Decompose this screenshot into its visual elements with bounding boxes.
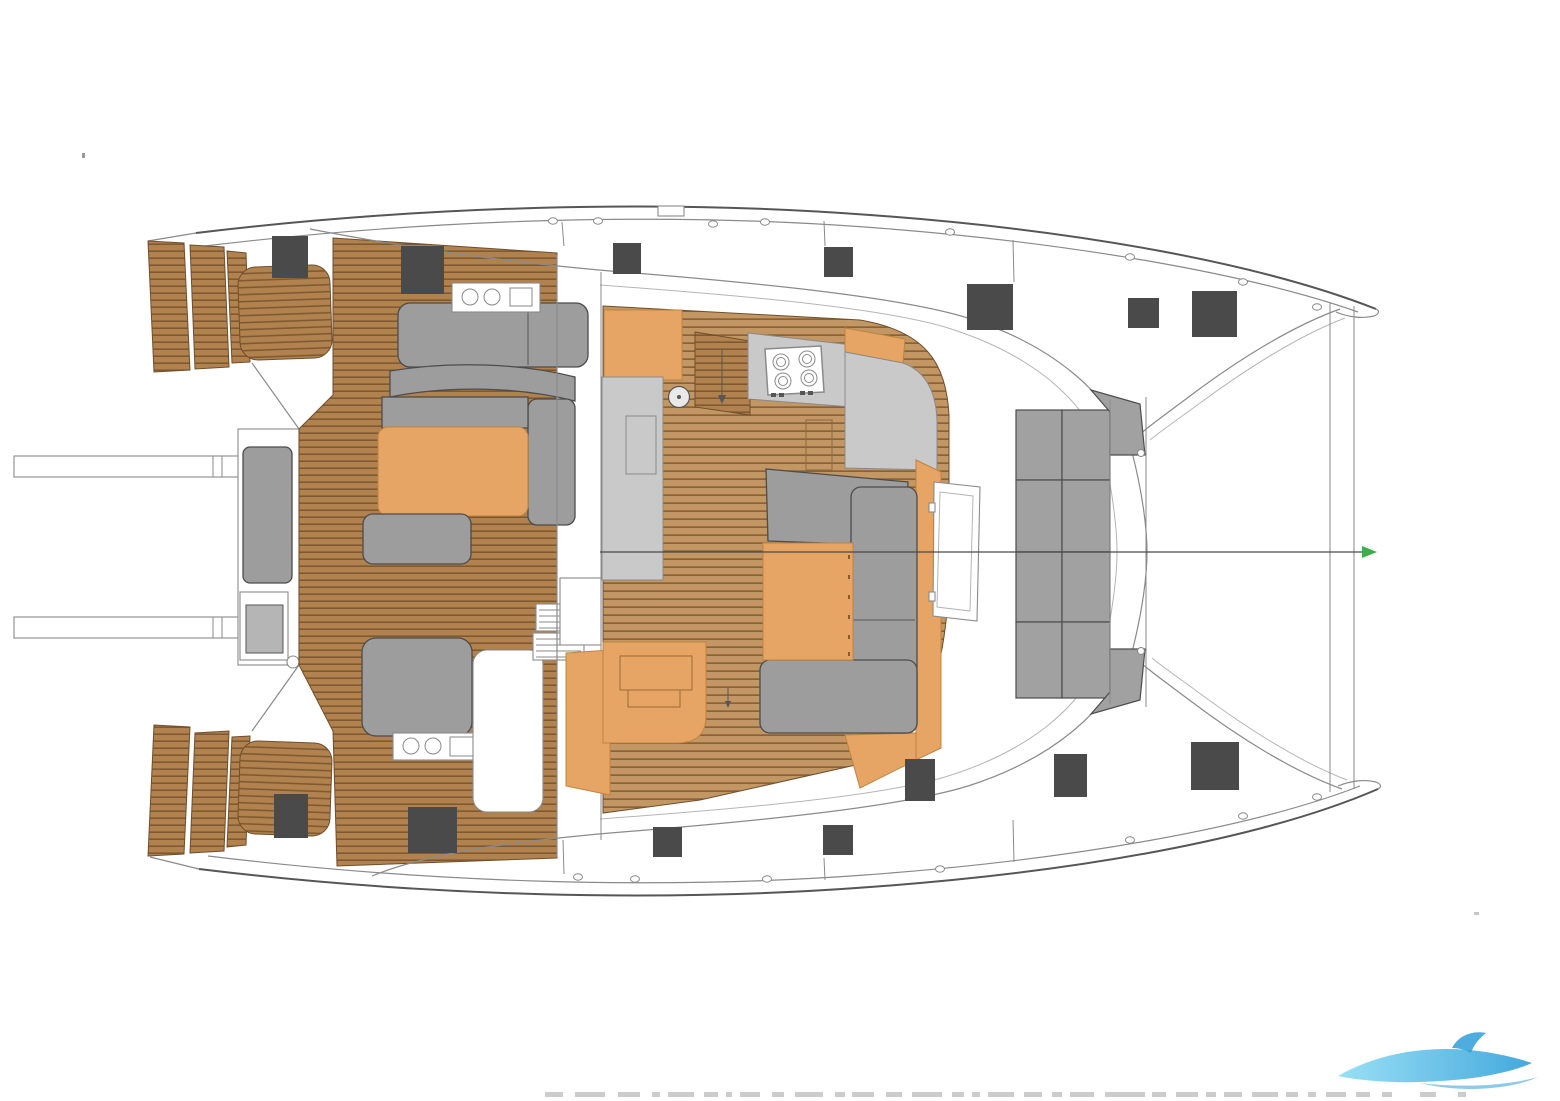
- footer-mark: [952, 1092, 964, 1097]
- footer-mark: [912, 1092, 942, 1097]
- transom-fitting: [287, 656, 299, 668]
- watermark-logo: [1338, 1032, 1538, 1089]
- scan-speck-2: [1474, 912, 1479, 915]
- footer-mark: [668, 1092, 694, 1097]
- saloon-table: [763, 543, 853, 660]
- deck-hatch: [824, 247, 853, 277]
- davit-bar-lower: [14, 617, 242, 638]
- chart-table: [603, 642, 706, 743]
- aft-cockpit: [299, 238, 588, 866]
- footer-mark: [1458, 1092, 1466, 1097]
- cleat: [763, 876, 772, 882]
- deck-hatch: [1192, 291, 1237, 337]
- cleat: [574, 874, 583, 880]
- anchor-locker: [658, 206, 684, 216]
- footer-mark: [1286, 1092, 1298, 1097]
- cockpit-bench-fwd: [363, 514, 471, 564]
- stbd-transom-edge: [150, 857, 199, 869]
- cleat: [631, 876, 640, 882]
- deck-hatch: [272, 236, 308, 278]
- deck-hatch: [1191, 742, 1239, 790]
- sliding-door-opening: [560, 578, 601, 645]
- footer-mark: [1356, 1092, 1370, 1097]
- footer-mark: [1382, 1092, 1392, 1097]
- port-transom-walkway-line: [252, 363, 299, 429]
- footer-mark: [1152, 1092, 1166, 1097]
- cleat: [1126, 254, 1135, 260]
- cleat: [594, 218, 603, 224]
- footer-mark: [972, 1092, 980, 1097]
- stbd-bow-inner-edge-2: [1152, 658, 1347, 780]
- cockpit-sofa-seat: [382, 397, 528, 428]
- footer-mark: [1070, 1092, 1094, 1097]
- stove: [765, 346, 824, 397]
- galley-sink-drain: [677, 395, 681, 399]
- deck-hatch: [1054, 754, 1087, 797]
- transom-locker-lid: [246, 605, 283, 653]
- deck-hatch: [274, 794, 308, 838]
- footer-mark: [652, 1092, 660, 1097]
- davit-bar-upper: [14, 456, 242, 477]
- footer-mark: [1105, 1092, 1145, 1097]
- cockpit-sofa-seat-right: [528, 399, 575, 525]
- footer-mark: [795, 1092, 823, 1097]
- forward-cushion-cell: [1016, 410, 1062, 480]
- cockpit-island: [473, 650, 543, 812]
- forward-cushion-cell: [1062, 480, 1110, 552]
- stbd-bow-inner-edge: [1142, 664, 1342, 789]
- forward-cushion-grid: [1016, 410, 1110, 698]
- deck-hatch: [905, 759, 935, 801]
- footer-mark: [886, 1092, 902, 1097]
- window-latch-2: [929, 592, 935, 601]
- forward-frame-pin-2: [1138, 648, 1145, 655]
- port-bow-inner-edge: [1140, 309, 1340, 434]
- cleat: [549, 218, 558, 224]
- deck-hatch: [823, 825, 853, 855]
- deck-hatch: [408, 807, 457, 853]
- forward-cushion-cell: [1016, 552, 1062, 622]
- cleat: [1239, 813, 1248, 819]
- footer-mark: [1420, 1092, 1436, 1097]
- cleat: [1239, 279, 1248, 285]
- cleat: [1126, 837, 1135, 843]
- footer-mark: [835, 1092, 845, 1097]
- footer-mark: [1052, 1092, 1062, 1097]
- drawing-canvas: [0, 0, 1560, 1101]
- cleat: [709, 221, 718, 227]
- stbd-bow-tip: [1338, 781, 1380, 789]
- footer-mark: [988, 1092, 1014, 1097]
- footer-mark: [1326, 1092, 1346, 1097]
- port-transom-seat: [237, 264, 332, 360]
- cleat: [1313, 794, 1322, 800]
- footer-mark: [1176, 1092, 1198, 1097]
- footer-mark: [772, 1092, 784, 1097]
- cleat: [946, 229, 955, 235]
- footer-mark: [1224, 1092, 1242, 1097]
- footer-mark: [1308, 1092, 1316, 1097]
- cleat: [936, 866, 945, 872]
- scan-speck-1: [82, 153, 85, 158]
- forward-cushion-cell: [1062, 622, 1110, 698]
- centerline-green-marker: [1362, 546, 1377, 558]
- deck-hatch: [653, 827, 682, 857]
- forward-cushion-cell: [1016, 480, 1062, 552]
- deck-hatch: [967, 284, 1013, 330]
- footer-mark: [618, 1092, 640, 1097]
- deck-hatch: [1128, 298, 1159, 328]
- window-latch-1: [929, 503, 935, 512]
- footer-mark: [704, 1092, 718, 1097]
- cockpit-wetbar: [452, 283, 540, 312]
- cleat: [1313, 304, 1322, 310]
- galley-counter-port: [602, 377, 663, 580]
- deck-hatch: [613, 243, 641, 274]
- forward-cushion-cell: [1062, 552, 1110, 622]
- footer-mark: [1024, 1092, 1042, 1097]
- cleat: [761, 219, 770, 225]
- stbd-swim-step-1: [148, 725, 190, 856]
- cockpit-helm-seat: [362, 638, 472, 736]
- footer-mark: [1252, 1092, 1278, 1097]
- footer-mark: [852, 1092, 874, 1097]
- footer-mark: [1206, 1092, 1216, 1097]
- aft-platform: [14, 429, 299, 668]
- galley-counter-aft: [604, 310, 682, 380]
- stove-top: [765, 346, 824, 395]
- deck-hatch: [401, 246, 444, 294]
- stbd-transom-walkway-line: [252, 665, 299, 731]
- port-bow-inner-edge-2: [1150, 318, 1345, 440]
- forward-frame-pin-1: [1138, 450, 1145, 457]
- footer-mark: [740, 1092, 760, 1097]
- port-swim-step-1: [148, 241, 190, 372]
- footer-cropped-text-marks: [545, 1092, 1466, 1097]
- forward-cushion-cell: [1016, 622, 1062, 698]
- transom-engine-hatch: [243, 447, 292, 583]
- deck-seams-bottom: [563, 820, 1014, 880]
- catamaran-floor-plan: [0, 0, 1560, 1101]
- footer-mark: [545, 1092, 563, 1097]
- cockpit-aft-bench: [398, 303, 588, 367]
- saloon-sofa-bench: [760, 660, 917, 733]
- saloon: [566, 306, 949, 813]
- cockpit-table: [378, 427, 528, 516]
- port-swim-step-2: [190, 245, 229, 369]
- stbd-swim-step-2: [190, 731, 229, 853]
- port-transom-edge: [148, 233, 196, 241]
- forward-cushion-cell: [1062, 410, 1110, 480]
- footer-mark: [726, 1092, 732, 1097]
- footer-mark: [575, 1092, 605, 1097]
- logo-wave-icon: [1338, 1049, 1532, 1082]
- port-bow-tip: [1336, 309, 1378, 317]
